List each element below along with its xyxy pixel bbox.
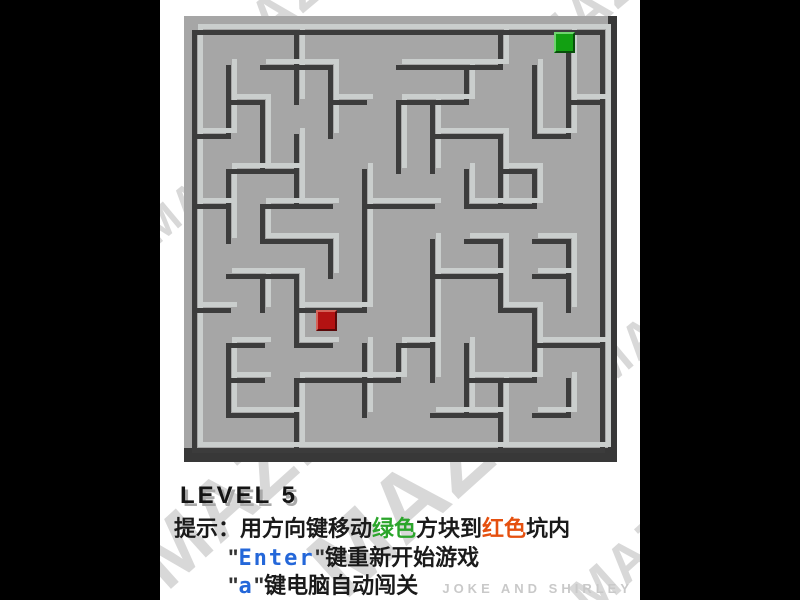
maze-wall <box>198 128 237 133</box>
hint-prefix: 提示：用方向键移动 <box>174 516 372 541</box>
maze-wall <box>232 407 305 412</box>
maze-wall <box>402 59 475 64</box>
maze-wall <box>606 24 611 447</box>
hint-line-3: "a"键电脑自动闯关 <box>228 568 418 600</box>
maze-wall <box>436 407 509 412</box>
hint-green-word: 绿色 <box>372 516 416 541</box>
maze-wall <box>436 268 509 273</box>
maze-wall <box>266 198 339 203</box>
maze-wall <box>504 163 543 168</box>
hint-mid: 方块到 <box>416 516 482 541</box>
credit-text: JOKE AND SHIRLEY <box>442 581 633 596</box>
maze-wall <box>232 372 271 377</box>
maze-wall <box>198 198 237 203</box>
maze-wall <box>402 337 407 377</box>
maze-wall <box>470 372 543 377</box>
maze-wall <box>470 233 509 238</box>
player-block-green[interactable] <box>554 32 575 53</box>
maze-wall <box>470 163 475 203</box>
maze-wall <box>266 233 339 238</box>
maze-wall <box>300 372 373 377</box>
maze-wall <box>232 268 305 273</box>
open-quote: " <box>228 573 238 598</box>
maze-wall <box>266 59 339 64</box>
maze-wall <box>368 233 373 308</box>
hint-line-3-text: 键电脑自动闯关 <box>264 573 418 598</box>
maze-wall <box>232 163 305 168</box>
maze-wall <box>436 128 509 133</box>
maze-wall <box>300 337 339 342</box>
maze-wall <box>402 94 407 169</box>
letterbox-right <box>640 0 800 600</box>
hint-red-word: 红色 <box>482 516 526 541</box>
maze-wall <box>198 302 237 307</box>
maze-wall <box>538 407 577 412</box>
maze-wall <box>504 302 543 307</box>
maze-wall <box>538 128 577 133</box>
maze-wall <box>402 94 475 99</box>
maze-wall <box>266 94 271 169</box>
maze-wall <box>232 337 271 342</box>
maze-wall <box>470 198 543 203</box>
game-screen: MAZEMAZEMAZEMAZEMAZEMAZEMAZE LEVEL 5 提示：… <box>0 0 800 600</box>
level-title: LEVEL 5 <box>180 482 298 510</box>
game-content-area: MAZEMAZEMAZEMAZEMAZEMAZEMAZE LEVEL 5 提示：… <box>160 0 640 600</box>
a-key-label: a <box>238 574 253 599</box>
maze-wall <box>538 59 543 134</box>
hint-line-1: 提示：用方向键移动绿色方块到红色坑内 <box>174 511 570 543</box>
maze-wall <box>538 163 543 203</box>
maze-wall <box>470 59 509 64</box>
maze-wall <box>572 94 611 99</box>
maze-wall <box>402 337 441 342</box>
target-pit-red <box>316 310 337 331</box>
maze-wall <box>368 372 407 377</box>
open-quote: " <box>228 545 238 570</box>
maze-wall <box>266 268 271 308</box>
maze-wall <box>538 233 577 238</box>
hint-line-2-text: 键重新开始游戏 <box>325 545 479 570</box>
maze-wall <box>334 233 339 273</box>
maze-wall <box>538 337 611 342</box>
maze-wall <box>198 24 203 447</box>
hint-suffix: 坑内 <box>526 516 570 541</box>
maze-wall <box>334 94 373 99</box>
close-quote: " <box>315 545 325 570</box>
maze-wall <box>198 24 611 29</box>
close-quote: " <box>254 573 264 598</box>
maze-wall <box>232 94 271 99</box>
maze-wall <box>300 302 373 307</box>
maze-wall <box>368 198 441 203</box>
maze-wall <box>538 268 577 273</box>
maze-wall <box>198 442 611 447</box>
maze-board[interactable] <box>184 16 617 462</box>
letterbox-left <box>0 0 160 600</box>
